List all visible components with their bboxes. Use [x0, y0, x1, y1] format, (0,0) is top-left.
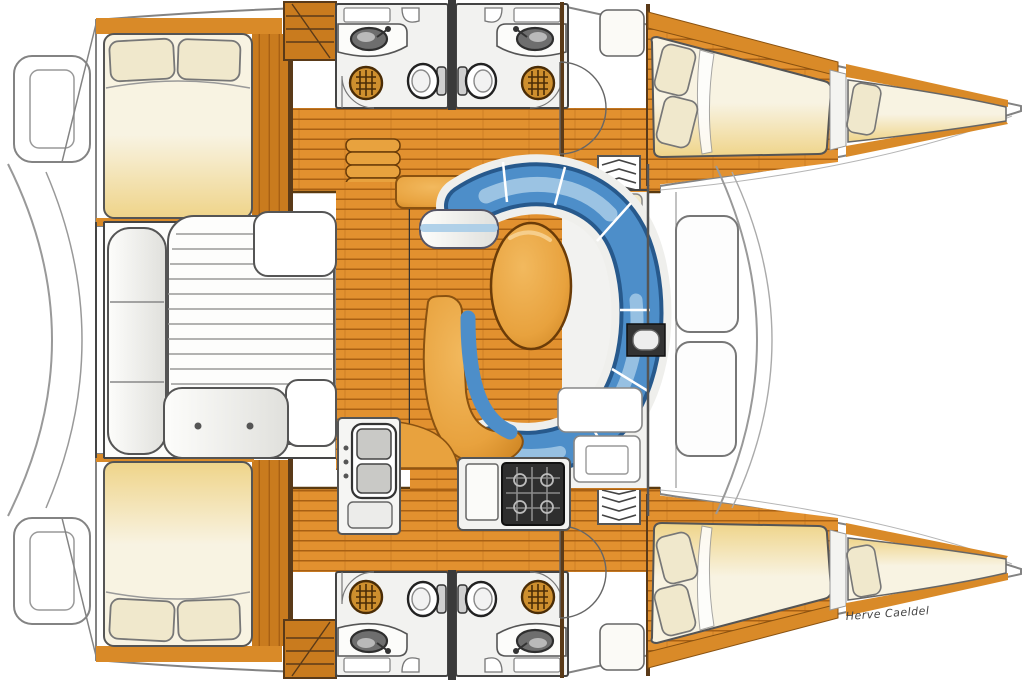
- sink-bowl: [357, 464, 391, 493]
- oval-dining-table: [491, 223, 571, 349]
- bench-button: [195, 423, 202, 430]
- davit-curve: [8, 164, 52, 516]
- cockpit-corner-seat: [286, 380, 336, 446]
- foredeck: [627, 164, 772, 516]
- burner-stove: [502, 463, 564, 525]
- mast-base: [633, 330, 659, 350]
- step: [346, 152, 400, 165]
- fridge-front: [348, 502, 392, 528]
- mast-step: [627, 324, 665, 356]
- cockpit-corner-seat: [254, 212, 336, 276]
- cockpit-fwd-bench: [164, 388, 288, 458]
- foredeck-hatch: [676, 342, 736, 456]
- floorplan-canvas: Herve Caeldel: [0, 0, 1024, 680]
- step: [346, 139, 400, 152]
- aft-beam-wall: [96, 222, 104, 458]
- chart-table: [574, 436, 640, 482]
- knob: [344, 446, 349, 451]
- step: [346, 165, 400, 178]
- knob: [344, 474, 349, 479]
- catamaran-floorplan: Herve Caeldel: [0, 0, 1024, 680]
- knob: [344, 460, 349, 465]
- cockpit-aft-bench: [108, 228, 166, 454]
- chart-seat: [558, 388, 642, 432]
- aft-crossbeam: [8, 164, 82, 516]
- bench-button: [247, 423, 254, 430]
- cutting-board: [466, 464, 498, 520]
- foredeck-hatch: [676, 216, 738, 332]
- sink-bowl: [357, 429, 391, 459]
